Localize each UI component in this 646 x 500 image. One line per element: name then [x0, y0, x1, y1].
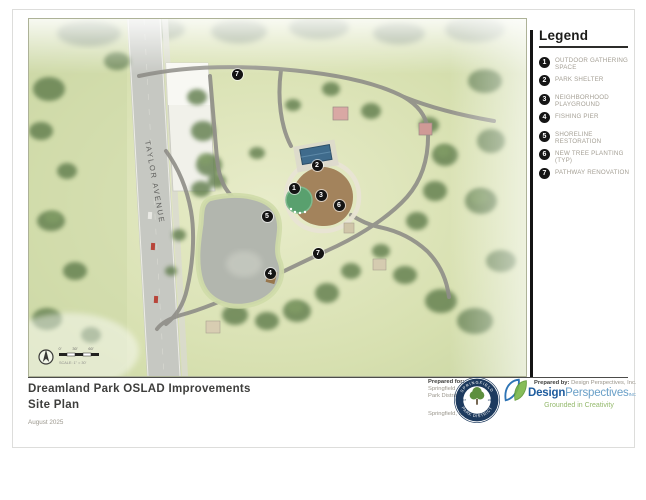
- legend-list: 1 OUTDOOR GATHERING SPACE 2 PARK SHELTER…: [539, 57, 633, 187]
- prepared-by-name: Design Perspectives, Inc.: [571, 380, 636, 386]
- legend-item-label: PATHWAY RENOVATION: [555, 168, 629, 176]
- map-marker-7: 7: [232, 69, 243, 80]
- site-aerial-map: TAYLOR AVENUE 0' 30' 60' SCALE: 1" = 30'…: [28, 18, 527, 377]
- brand-inc: INC: [629, 392, 636, 397]
- brand-design: Design: [528, 387, 565, 399]
- legend-item: 1 OUTDOOR GATHERING SPACE: [539, 57, 633, 76]
- legend-title: Legend: [539, 28, 633, 43]
- titleblock-divider: [28, 377, 628, 378]
- legend-item: 3 NEIGHBORHOOD PLAYGROUND: [539, 94, 633, 113]
- legend-item: 6 NEW TREE PLANTING (TYP): [539, 149, 633, 168]
- legend-item: 7 PATHWAY RENOVATION: [539, 168, 633, 187]
- sheet-subtitle: Site Plan: [28, 398, 251, 414]
- prepared-by-heading: Prepared by:: [534, 380, 569, 386]
- legend-divider-rule: [530, 30, 533, 377]
- legend-number-badge: 4: [539, 112, 550, 123]
- legend-number-badge: 3: [539, 94, 550, 105]
- logo-year-text: 1900: [488, 398, 495, 402]
- map-marker-3: 3: [316, 190, 327, 201]
- legend-number-badge: 2: [539, 75, 550, 86]
- legend-item-label: OUTDOOR GATHERING SPACE: [555, 57, 633, 72]
- legend-panel: Legend 1 OUTDOOR GATHERING SPACE 2 PARK …: [539, 28, 633, 187]
- sheet-date: August 2025: [28, 419, 251, 426]
- legend-number-badge: 5: [539, 131, 550, 142]
- map-marker-7: 7: [313, 248, 324, 259]
- legend-item-label: NEIGHBORHOOD PLAYGROUND: [555, 94, 633, 109]
- design-perspectives-logo-icon: [502, 377, 530, 403]
- legend-number-badge: 7: [539, 168, 550, 179]
- legend-number-badge: 1: [539, 57, 550, 68]
- legend-item-label: NEW TREE PLANTING (TYP): [555, 149, 633, 164]
- springfield-park-district-logo: SPRINGFIELD PARK DISTRICT EST 1900: [454, 377, 500, 423]
- legend-item-label: PARK SHELTER: [555, 75, 604, 83]
- map-marker-6: 6: [334, 200, 345, 211]
- logo-est-text: EST: [461, 398, 467, 402]
- legend-underline: [539, 46, 628, 48]
- legend-item-label: SHORELINE RESTORATION: [555, 131, 633, 146]
- map-marker-4: 4: [265, 268, 276, 279]
- legend-item: 2 PARK SHELTER: [539, 75, 633, 94]
- map-marker-2: 2: [312, 160, 323, 171]
- legend-item: 5 SHORELINE RESTORATION: [539, 131, 633, 150]
- marker-layer: 72136574: [29, 19, 526, 376]
- legend-item: 4 FISHING PIER: [539, 112, 633, 131]
- map-marker-5: 5: [262, 211, 273, 222]
- sheet-title: Dreamland Park OSLAD Improvements: [28, 382, 251, 398]
- design-perspectives-wordmark: DesignPerspectivesINC: [528, 387, 636, 399]
- legend-number-badge: 6: [539, 149, 550, 160]
- legend-item-label: FISHING PIER: [555, 112, 599, 120]
- title-block: Dreamland Park OSLAD Improvements Site P…: [28, 382, 251, 426]
- prepared-by-line: Prepared by: Design Perspectives, Inc.: [534, 380, 636, 386]
- brand-tagline: Grounded in Creativity: [528, 402, 630, 409]
- brand-perspectives: Perspectives: [565, 387, 628, 399]
- map-marker-1: 1: [289, 183, 300, 194]
